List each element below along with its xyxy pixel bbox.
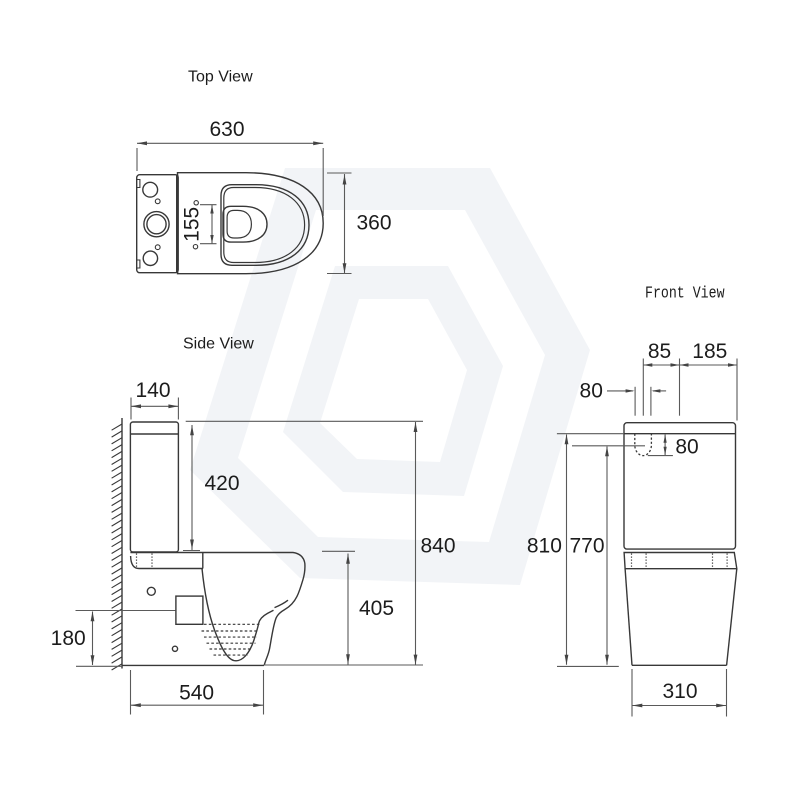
svg-text:420: 420 — [205, 472, 240, 495]
svg-text:140: 140 — [135, 379, 170, 402]
svg-text:180: 180 — [51, 627, 86, 650]
svg-text:540: 540 — [179, 681, 214, 704]
svg-text:810: 810 — [527, 534, 562, 557]
svg-text:80: 80 — [675, 435, 698, 458]
svg-text:840: 840 — [421, 534, 456, 557]
svg-text:310: 310 — [662, 680, 697, 703]
svg-text:405: 405 — [359, 597, 394, 620]
svg-text:360: 360 — [357, 212, 392, 235]
svg-text:155: 155 — [181, 207, 204, 242]
svg-text:Top View: Top View — [188, 69, 253, 86]
svg-text:80: 80 — [580, 379, 603, 402]
svg-text:Front View: Front View — [645, 283, 725, 303]
svg-text:630: 630 — [209, 118, 244, 141]
svg-text:85: 85 — [648, 340, 671, 363]
svg-text:185: 185 — [692, 340, 727, 363]
svg-text:Side View: Side View — [183, 336, 254, 353]
svg-text:770: 770 — [569, 534, 604, 557]
